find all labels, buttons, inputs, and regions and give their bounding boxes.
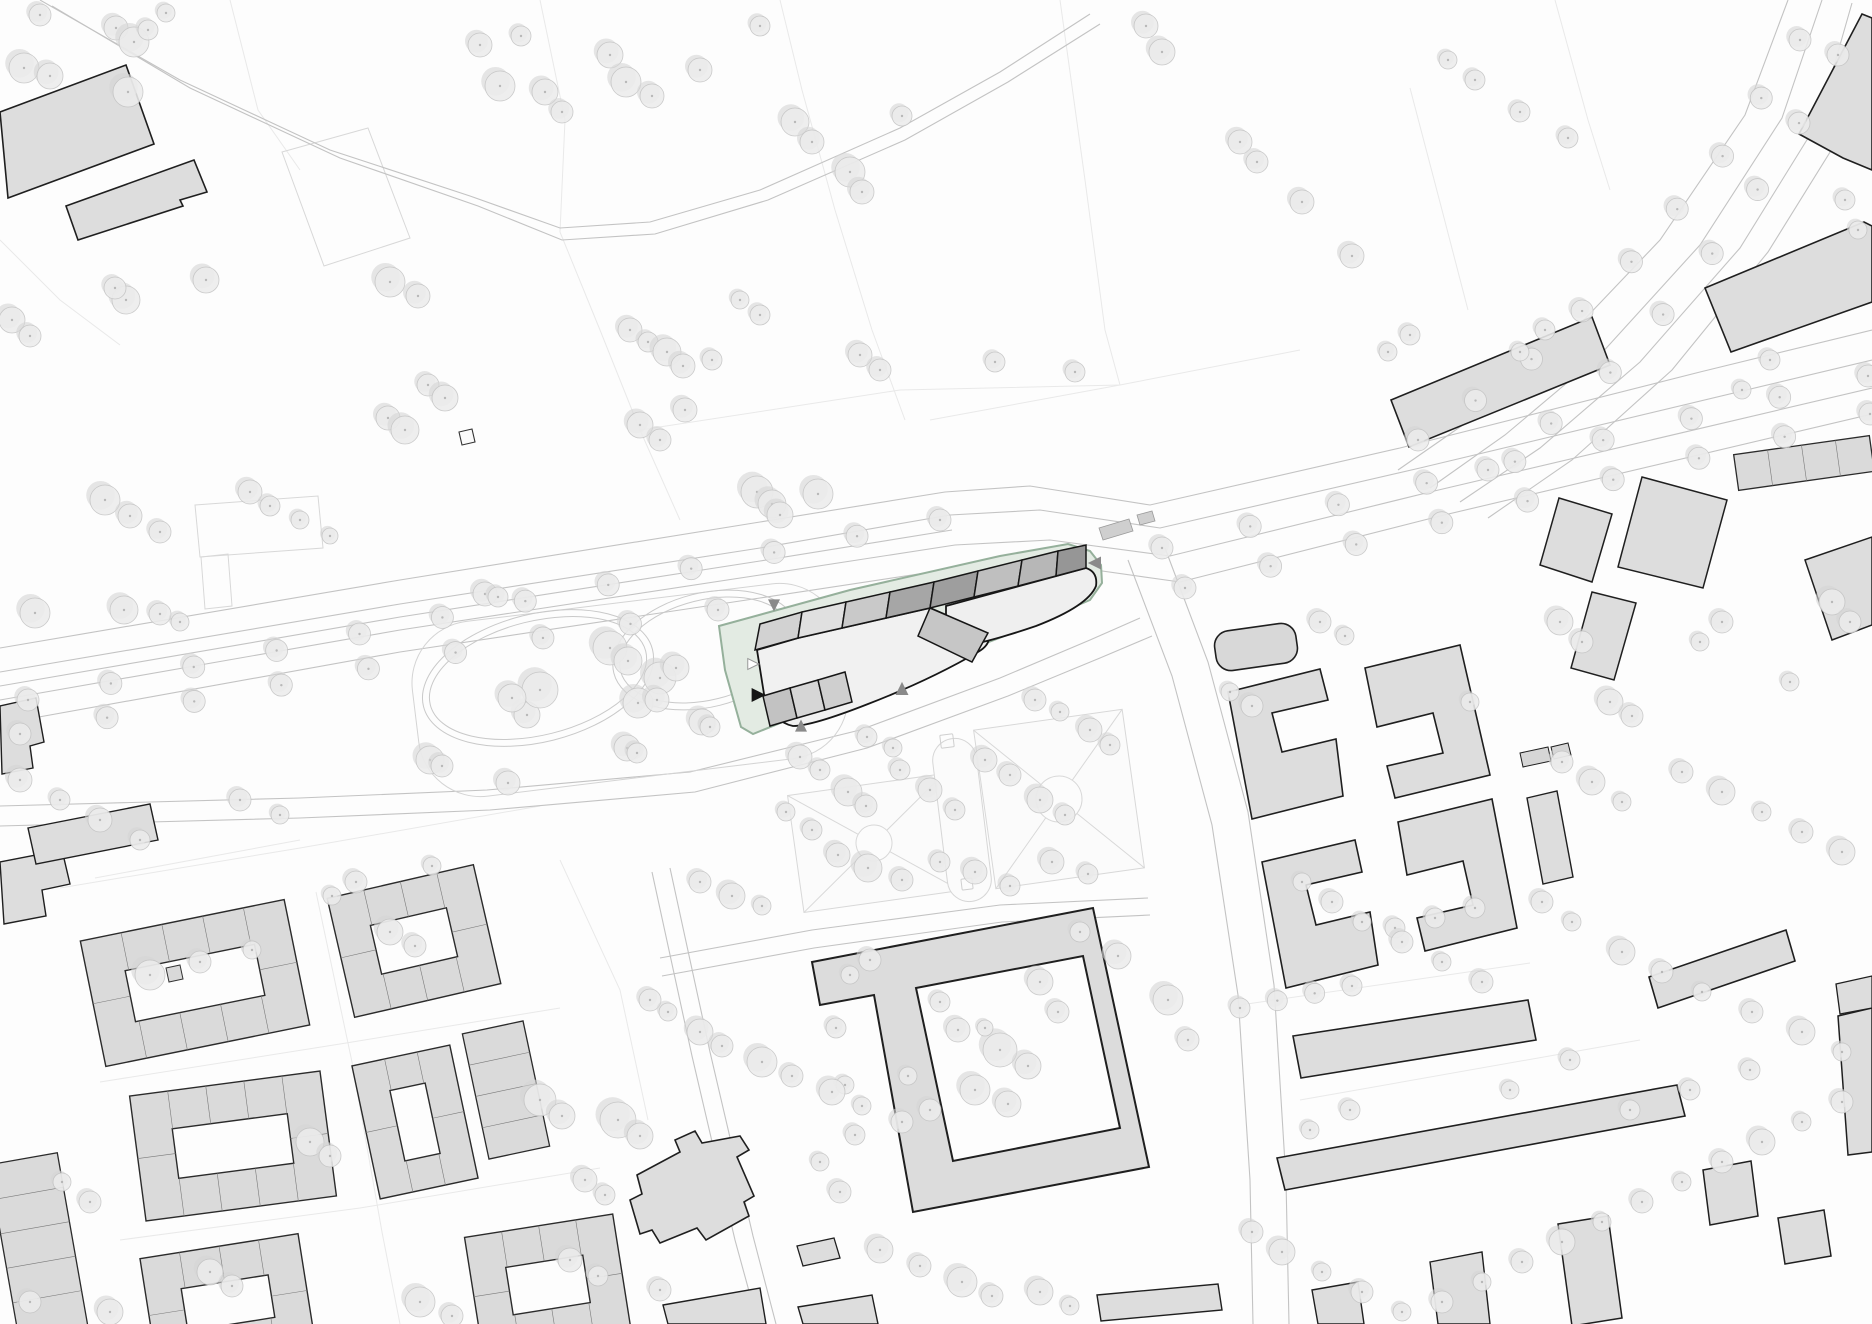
tree-trunk-dot [27,699,29,701]
tree-trunk-dot [1474,399,1476,401]
tree-trunk-dot [1778,396,1780,398]
tree-trunk-dot [666,351,668,353]
tree-trunk-dot [404,429,406,431]
tree-trunk-dot [1474,79,1476,81]
tree-trunk-dot [1249,525,1251,527]
tree-trunk-dot [690,567,692,569]
tree-trunk-dot [239,799,241,801]
tree-trunk-dot [1801,831,1803,833]
tree-trunk-dot [19,779,21,781]
tree-trunk-dot [1361,1291,1363,1293]
tree-trunk-dot [1609,371,1611,373]
tree-trunk-dot [584,1179,586,1181]
tree-trunk-dot [939,519,941,521]
tree-trunk-dot [1698,457,1700,459]
tree-trunk-dot [1581,310,1583,312]
tree-trunk-dot [847,791,849,793]
tree-trunk-dot [309,1141,311,1143]
tree-trunk-dot [1541,901,1543,903]
tree-trunk-dot [1161,51,1163,53]
tree-trunk-dot [811,829,813,831]
tree-trunk-dot [34,612,36,614]
tree-trunk-dot [609,647,611,649]
tree-trunk-dot [1301,881,1303,883]
tree-trunk-dot [1441,1301,1443,1303]
tree-trunk-dot [849,171,851,173]
tree-trunk-dot [511,697,513,699]
tree-trunk-dot [1401,1311,1403,1313]
tree-trunk-dot [939,1001,941,1003]
tree-trunk-dot [785,811,787,813]
tree-trunk-dot [417,295,419,297]
tree-trunk-dot [1681,1181,1683,1183]
tree-trunk-dot [1569,1059,1571,1061]
tree-trunk-dot [739,299,741,301]
tree-trunk-dot [779,514,781,516]
buildings [1778,1210,1831,1264]
tree-trunk-dot [123,609,125,611]
tree-trunk-dot [1184,587,1186,589]
tree-trunk-dot [133,41,135,43]
tree-trunk-dot [974,871,976,873]
tree-trunk-dot [1761,811,1763,813]
tree-trunk-dot [431,865,433,867]
tree-trunk-dot [984,759,986,761]
tree-trunk-dot [607,584,609,586]
tree-trunk-dot [127,91,129,93]
tree-trunk-dot [639,424,641,426]
tree-trunk-dot [1591,781,1593,783]
tree-trunk-dot [1869,413,1871,415]
tree-trunk-dot [1064,814,1066,816]
tree-trunk-dot [929,1109,931,1111]
tree-trunk-dot [1699,641,1701,643]
tree-trunk-dot [1074,371,1076,373]
tree-trunk-dot [1561,761,1563,763]
tree-trunk-dot [280,684,282,686]
tree-trunk-dot [441,616,443,618]
tree-trunk-dot [299,519,301,521]
tree-trunk-dot [761,905,763,907]
tree-trunk-dot [1007,1103,1009,1105]
tree-trunk-dot [205,279,207,281]
tree-trunk-dot [1550,422,1552,424]
tree-trunk-dot [837,854,839,856]
tree-trunk-dot [1117,955,1119,957]
tree-trunk-dot [659,439,661,441]
tree-trunk-dot [1087,873,1089,875]
tree-trunk-dot [1167,999,1169,1001]
tree-trunk-dot [507,782,509,784]
tree-trunk-dot [721,1045,723,1047]
tree-trunk-dot [879,369,881,371]
tree-trunk-dot [1559,621,1561,623]
tree-trunk-dot [39,14,41,16]
tree-trunk-dot [427,384,429,386]
tree-trunk-dot [1601,1221,1603,1223]
tree-trunk-dot [1561,1241,1563,1243]
tree-trunk-dot [29,335,31,337]
tree-trunk-dot [866,736,868,738]
tree-trunk-dot [799,756,801,758]
tree-trunk-dot [544,91,546,93]
tree-trunk-dot [61,1181,63,1183]
tree-trunk-dot [1447,59,1449,61]
tree-trunk-dot [109,1311,111,1313]
tree-trunk-dot [115,27,117,29]
tree-trunk-dot [629,623,631,625]
tree-trunk-dot [269,505,271,507]
tree-trunk-dot [759,25,761,27]
tree-trunk-dot [159,613,161,615]
tree-trunk-dot [854,1134,856,1136]
tree-trunk-dot [149,974,151,976]
tree-trunk-dot [597,1275,599,1277]
tree-trunk-dot [604,1194,606,1196]
tree-trunk-dot [901,115,903,117]
tree-trunk-dot [441,765,443,767]
tree-trunk-dot [1434,917,1436,919]
tree-trunk-dot [819,769,821,771]
tree-trunk-dot [1521,1261,1523,1263]
tree-trunk-dot [1344,635,1346,637]
tree-trunk-dot [1276,999,1278,1001]
tree-trunk-dot [899,769,901,771]
tree-trunk-dot [49,75,51,77]
tree-trunk-dot [711,359,713,361]
tree-trunk-dot [1544,329,1546,331]
tree-trunk-dot [209,1271,211,1273]
tree-trunk-dot [1425,482,1427,484]
tree-trunk-dot [919,1265,921,1267]
tree-trunk-dot [1409,334,1411,336]
tree-trunk-dot [526,714,528,716]
tree-trunk-dot [454,651,456,653]
tree-trunk-dot [199,961,201,963]
tree-trunk-dot [1721,155,1723,157]
buildings [166,965,183,982]
tree-trunk-dot [1281,1251,1283,1253]
tree-trunk-dot [1187,1039,1189,1041]
tree-trunk-dot [717,609,719,611]
tree-trunk-dot [1581,641,1583,643]
tree-trunk-dot [856,535,858,537]
tree-trunk-dot [1799,39,1801,41]
tree-trunk-dot [817,493,819,495]
tree-trunk-dot [89,1201,91,1203]
tree-trunk-dot [1487,469,1489,471]
tree-trunk-dot [1681,771,1683,773]
tree-trunk-dot [1331,901,1333,903]
tree-trunk-dot [1481,981,1483,983]
tree-trunk-dot [1069,1305,1071,1307]
tree-trunk-dot [114,287,116,289]
tree-trunk-dot [1301,201,1303,203]
tree-trunk-dot [331,895,333,897]
tree-trunk-dot [520,35,522,37]
tree-trunk-dot [859,354,861,356]
tree-trunk-dot [125,299,127,301]
tree-trunk-dot [844,1084,846,1086]
buildings [459,429,475,445]
tree-trunk-dot [831,1091,833,1093]
tree-trunk-dot [867,867,869,869]
tree-trunk-dot [861,1105,863,1107]
tree-trunk-dot [539,689,541,691]
tree-trunk-dot [1337,504,1339,506]
tree-trunk-dot [684,409,686,411]
tree-trunk-dot [1721,621,1723,623]
tree-trunk-dot [389,281,391,283]
tree-trunk-dot [651,95,653,97]
tree-trunk-dot [1039,799,1041,801]
tree-trunk-dot [569,1259,571,1261]
tree-trunk-dot [699,1031,701,1033]
tree-trunk-dot [639,1135,641,1137]
tree-canopy [441,1305,463,1324]
tree-trunk-dot [1009,774,1011,776]
tree-trunk-dot [1571,921,1573,923]
tree-trunk-dot [367,668,369,670]
tree-trunk-dot [147,29,149,31]
tree-trunk-dot [1602,439,1604,441]
tree-trunk-dot [974,1089,976,1091]
tree-trunk-dot [939,861,941,863]
tree-trunk-dot [1319,621,1321,623]
tree-trunk-dot [1355,543,1357,545]
tree-trunk-dot [636,752,638,754]
tree-trunk-dot [699,69,701,71]
tree-trunk-dot [1057,1011,1059,1013]
tree-trunk-dot [159,531,161,533]
tree-trunk-dot [1039,1291,1041,1293]
tree-trunk-dot [139,839,141,841]
tree-trunk-dot [499,85,501,87]
tree-trunk-dot [879,1249,881,1251]
tree-trunk-dot [1526,500,1528,502]
tree-trunk-dot [524,600,526,602]
tree-trunk-dot [11,319,13,321]
tree-trunk-dot [1661,971,1663,973]
tree-trunk-dot [1039,981,1041,983]
tree-trunk-dot [1690,417,1692,419]
tree-trunk-dot [1631,715,1633,717]
tree-trunk-dot [1801,1031,1803,1033]
tree-trunk-dot [1027,1065,1029,1067]
tree-trunk-dot [129,515,131,517]
tree-trunk-dot [1145,25,1147,27]
tree-trunk-dot [839,1191,841,1193]
tree-trunk-dot [1621,801,1623,803]
tree-trunk-dot [1711,252,1713,254]
tree-trunk-dot [759,314,761,316]
tree-trunk-dot [419,1301,421,1303]
tree-trunk-dot [1831,601,1833,603]
tree-trunk-dot [1251,1231,1253,1233]
tree-trunk-dot [59,799,61,801]
tree-trunk-dot [961,1281,963,1283]
tree-trunk-dot [1530,358,1532,360]
tree-trunk-dot [1351,985,1353,987]
tree-trunk-dot [1741,389,1743,391]
tree-trunk-dot [954,809,956,811]
tree-trunk-dot [1161,547,1163,549]
tree-trunk-dot [1009,885,1011,887]
tree-trunk-dot [1441,961,1443,963]
tree-trunk-dot [29,1301,31,1303]
tree-trunk-dot [791,1075,793,1077]
tree-trunk-dot [329,535,331,537]
tree-trunk-dot [617,1119,619,1121]
tree-trunk-dot [1351,255,1353,257]
tree-trunk-dot [110,682,112,684]
tree-trunk-dot [1751,1011,1753,1013]
tree-trunk-dot [479,44,481,46]
tree-trunk-dot [869,959,871,961]
site-plan-svg [0,0,1872,1324]
tree-trunk-dot [1481,1281,1483,1283]
tree-trunk-dot [957,1029,959,1031]
tree-trunk-dot [1051,861,1053,863]
tree-trunk-dot [1239,141,1241,143]
tree-trunk-dot [23,67,25,69]
tree-trunk-dot [1676,208,1678,210]
tree-trunk-dot [1783,436,1785,438]
tree-trunk-dot [1401,941,1403,943]
tree-trunk-dot [193,666,195,668]
tree-trunk-dot [1629,1109,1631,1111]
tree-trunk-dot [539,1099,541,1101]
tree-trunk-dot [1721,791,1723,793]
tree-trunk-dot [1630,261,1632,263]
tree-trunk-dot [1701,991,1703,993]
tree-trunk-dot [561,111,563,113]
tree-trunk-dot [892,747,894,749]
tree-trunk-dot [627,660,629,662]
tree-trunk-dot [1514,460,1516,462]
tree-trunk-dot [1519,351,1521,353]
tree-trunk-dot [1269,565,1271,567]
tree-trunk-dot [1251,705,1253,707]
tree-trunk-dot [231,1285,233,1287]
tree-trunk-dot [1612,478,1614,480]
tree-trunk-dot [1469,701,1471,703]
tree-trunk-dot [649,999,651,1001]
tree-trunk-dot [104,499,106,501]
tree-trunk-dot [1769,359,1771,361]
tree-trunk-dot [609,54,611,56]
tree-trunk-dot [414,945,416,947]
tree-trunk-dot [279,814,281,816]
tree-trunk-dot [1867,375,1869,377]
tree-trunk-dot [625,81,627,83]
tree-trunk-dot [1509,1089,1511,1091]
tree-trunk-dot [1841,1051,1843,1053]
tree-trunk-dot [699,881,701,883]
tree-trunk-dot [1441,521,1443,523]
tree-trunk-dot [1059,711,1061,713]
tree-trunk-dot [999,1049,1001,1051]
tree-trunk-dot [1761,1141,1763,1143]
tree-trunk-dot [1567,137,1569,139]
tree-trunk-dot [1034,699,1036,701]
tree-trunk-dot [1417,439,1419,441]
tree-trunk-dot [106,717,108,719]
tree-trunk-dot [1641,1201,1643,1203]
tree-trunk-dot [1321,1271,1323,1273]
tree-trunk-dot [849,974,851,976]
tree-trunk-dot [647,341,649,343]
tree-trunk-dot [773,551,775,553]
tree-trunk-dot [389,931,391,933]
tree-trunk-dot [1837,54,1839,56]
tree-trunk-dot [1079,931,1081,933]
tree-trunk-dot [1109,744,1111,746]
tree-trunk-dot [1387,351,1389,353]
tree-trunk-dot [1474,907,1476,909]
tree-trunk-dot [1229,691,1231,693]
tree-trunk-dot [1689,1089,1691,1091]
tree-trunk-dot [907,1075,909,1077]
tree-trunk-dot [251,949,253,951]
tree-trunk-dot [984,1027,986,1029]
tree-trunk-dot [929,789,931,791]
tree-trunk-dot [682,365,684,367]
tree-trunk-dot [861,191,863,193]
tree-trunk-dot [193,700,195,702]
tree-trunk-dot [165,12,167,14]
tree-trunk-dot [991,1295,993,1297]
tree-trunk-dot [1519,111,1521,113]
tree-trunk-dot [901,1121,903,1123]
tree-trunk-dot [387,417,389,419]
tree-trunk-dot [561,1115,563,1117]
tree-trunk-dot [1849,621,1851,623]
tree-trunk-dot [1749,1069,1751,1071]
tree-trunk-dot [1760,97,1762,99]
tree-trunk-dot [1662,313,1664,315]
tree-trunk-dot [1256,161,1258,163]
tree-trunk-dot [1239,1007,1241,1009]
tree-trunk-dot [275,649,277,651]
tree-trunk-dot [329,1155,331,1157]
tree-trunk-dot [656,699,658,701]
site-plan-canvas [0,0,1872,1324]
tree-trunk-dot [1313,992,1315,994]
tree-trunk-dot [358,633,360,635]
tree-trunk-dot [1721,1161,1723,1163]
tree-trunk-dot [1309,1129,1311,1131]
tree-trunk-dot [99,819,101,821]
tree-trunk-dot [731,895,733,897]
tree-trunk-dot [1857,229,1859,231]
tree-trunk-dot [1756,188,1758,190]
tree-trunk-dot [835,1027,837,1029]
tree-trunk-dot [1798,122,1800,124]
tree-trunk-dot [794,121,796,123]
tree-trunk-dot [659,1289,661,1291]
tree-trunk-dot [994,361,996,363]
tree-trunk-dot [1361,921,1363,923]
tree-trunk-dot [451,1315,453,1317]
tree-trunk-dot [542,637,544,639]
tree-trunk-dot [355,881,357,883]
tree-trunk-dot [19,733,21,735]
tree-trunk-dot [1609,701,1611,703]
tree-trunk-dot [249,491,251,493]
tree-trunk-dot [659,677,661,679]
tree-trunk-dot [497,596,499,598]
